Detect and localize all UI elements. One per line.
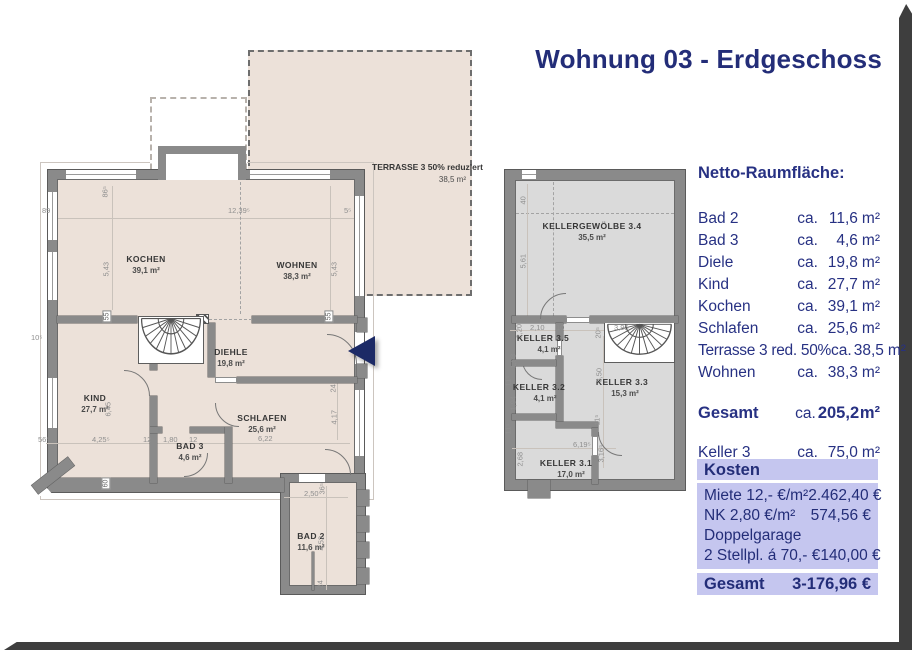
dim-label: 86⁵ <box>101 186 110 197</box>
wall-pilaster <box>357 318 367 332</box>
dim-label: 60 <box>101 478 110 490</box>
window <box>355 196 364 296</box>
dim-label: 4,17 <box>330 410 339 425</box>
room-area: 39,1 m² <box>132 266 160 275</box>
terrace-area-label: 38,5 m² <box>372 175 466 184</box>
dim-label: 11⁵ <box>593 415 602 426</box>
room-label: KELLERGEWÖLBE 3.4 <box>543 221 642 231</box>
kosten-header: Kosten <box>697 459 878 480</box>
dim-label: 55 <box>324 311 333 323</box>
kosten-total: Gesamt 3-176,96 € <box>697 573 878 595</box>
terrace-label: TERRASSE 3 50% reduziert <box>372 162 466 172</box>
area-list-heading: Netto-Raumfläche: <box>698 164 880 183</box>
room-area: 38,3 m² <box>283 272 311 281</box>
dimension-line <box>112 186 113 310</box>
window <box>48 252 57 300</box>
room-area: 25,6 m² <box>248 425 276 434</box>
dim-label: 10 <box>556 323 564 332</box>
door-leaf <box>215 377 237 383</box>
dim-label: 56⁵ <box>38 435 49 444</box>
wall <box>512 360 556 366</box>
room-area: 35,5 m² <box>578 233 606 242</box>
area-row: Bad 2 ca. 11,6 m² <box>698 210 880 232</box>
room-label: KELLER 3.5 <box>517 333 569 343</box>
kosten-row: NK 2,80 €/m² 574,56 € <box>704 507 871 527</box>
dim-label: 11⁵ <box>504 376 513 387</box>
dimension-line <box>326 486 327 590</box>
spiral-stairs-icon <box>139 317 203 363</box>
wall <box>150 427 162 433</box>
window <box>48 378 57 428</box>
dim-label: 89 <box>42 206 50 215</box>
dim-label: 5,43 <box>102 262 111 277</box>
area-row: Kochen ca. 39,1 m² <box>698 298 880 320</box>
room-area: 4,1 m² <box>533 394 556 403</box>
wall <box>592 428 598 436</box>
dim-label: 4,52 <box>317 536 326 551</box>
dim-label: 2,10 <box>530 323 545 332</box>
dim-label: 40 <box>519 196 528 204</box>
wall <box>57 316 137 323</box>
wall <box>225 427 232 483</box>
dim-label: 12 <box>143 435 151 444</box>
bay-protrusion <box>158 146 246 180</box>
room-area: 4,6 m² <box>178 453 201 462</box>
dim-label: 36⁵ <box>318 483 327 494</box>
shower-partition <box>312 552 314 590</box>
dim-label: 10⁵ <box>31 333 42 342</box>
dim-label: 5⁵ <box>344 206 351 215</box>
area-list: Netto-Raumfläche: Bad 2 ca. 11,6 m² Bad … <box>698 164 880 466</box>
wall-pilaster <box>357 490 369 506</box>
wall <box>48 478 284 492</box>
room-label: KELLER 3.1 <box>540 458 592 468</box>
expose-page: Wohnung 03 - Erdgeschoss Netto-Raumfläch… <box>0 0 920 650</box>
dim-label: 6,19⁵ <box>573 440 591 449</box>
kosten-body: Miete 12,- €/m² 2.462,40 € NK 2,80 €/m² … <box>697 483 878 569</box>
room-area: 15,3 m² <box>611 389 639 398</box>
dim-label: 1,94 <box>509 396 518 411</box>
dim-label: 20⁵ <box>594 327 603 338</box>
kosten-row: Miete 12,- €/m² 2.462,40 € <box>704 487 871 507</box>
dim-label: 3,95 <box>614 323 629 332</box>
room-label: SCHLAFEN <box>237 413 286 423</box>
room-area: 19,8 m² <box>217 359 245 368</box>
dim-label: 55 <box>102 311 111 323</box>
room-label: KELLER 3.2 <box>513 382 565 392</box>
area-total-row: Gesamt ca. 205,2 m² <box>698 404 880 426</box>
wall-pilaster <box>357 516 369 532</box>
window <box>522 170 536 179</box>
room-label: WOHNEN <box>276 260 317 270</box>
window <box>48 192 57 240</box>
window <box>66 170 136 179</box>
room-area: 4,1 m² <box>537 345 560 354</box>
open-passage-dashed <box>209 319 252 320</box>
area-row: Schlafen ca. 25,6 m² <box>698 320 880 342</box>
wall <box>237 377 357 383</box>
dimension-line <box>330 186 331 310</box>
wall <box>252 316 357 323</box>
room-label: DIEHLE <box>214 347 248 357</box>
window <box>250 170 330 179</box>
dim-label: 24 <box>329 384 338 392</box>
room-label: KELLER 3.3 <box>596 377 648 387</box>
area-row: Diele ca. 19,8 m² <box>698 254 880 276</box>
dim-label: 12 <box>189 435 197 444</box>
centerline-dashed <box>240 182 241 314</box>
wall-pilaster <box>357 542 369 558</box>
dim-label: 6,45 <box>104 402 113 417</box>
spiral-stairs <box>138 316 204 364</box>
dim-label: 1,93 <box>509 354 518 369</box>
dim-label: 5,61 <box>519 254 528 269</box>
dim-label: 6,22 <box>258 434 273 443</box>
dim-label: 3,16⁵ <box>597 445 606 463</box>
room-label: KOCHEN <box>126 254 165 264</box>
wall <box>512 414 556 420</box>
dim-label: 4,25⁵ <box>92 435 110 444</box>
area-row: Wohnen ca. 38,3 m² <box>698 364 880 386</box>
page-edge-right <box>899 4 912 646</box>
kosten-row: Doppelgarage <box>704 527 871 547</box>
vault-line-dashed <box>516 213 674 214</box>
page-edge-bottom <box>4 642 912 650</box>
dim-label: 2,20 <box>515 324 524 339</box>
entrance-arrow-icon <box>348 336 375 366</box>
door-opening <box>299 474 325 482</box>
room-area: 17,0 m² <box>557 470 585 479</box>
wall-pilaster <box>357 364 367 378</box>
dim-label: 24 <box>316 580 325 588</box>
page-title: Wohnung 03 - Erdgeschoss <box>535 44 882 75</box>
dim-label: 1,80 <box>163 435 178 444</box>
dim-label: 2,50 <box>304 489 319 498</box>
area-row: Terrasse 3 red. 50% ca. 38,5 m² <box>698 342 880 364</box>
dim-label: 3,50 <box>595 368 604 383</box>
door-leaf <box>566 317 590 323</box>
dim-label: 2,68 <box>516 452 525 467</box>
dim-label: 11⁵ <box>504 424 513 435</box>
wall <box>590 316 678 323</box>
wall-step <box>528 480 550 498</box>
area-row: Bad 3 ca. 4,6 m² <box>698 232 880 254</box>
kosten-row: 2 Stellpl. á 70,- € 140,00 € <box>704 547 871 567</box>
dimension-line <box>58 218 354 219</box>
wall-pilaster <box>357 568 369 584</box>
dim-label: 5,43 <box>330 262 339 277</box>
area-row: Kind ca. 27,7 m² <box>698 276 880 298</box>
dim-label: 12,39⁵ <box>228 206 250 215</box>
window <box>355 390 364 456</box>
